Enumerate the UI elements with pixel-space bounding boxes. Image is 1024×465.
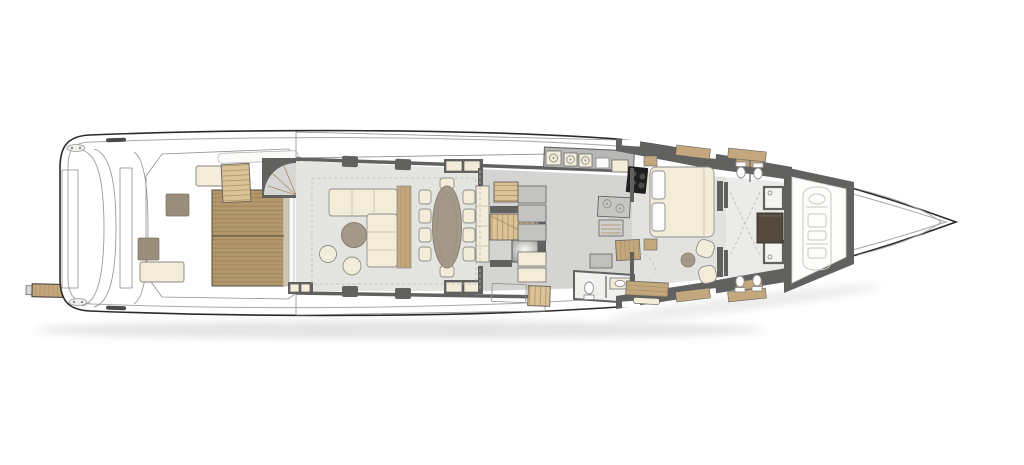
- stairs-upper-flight: [494, 182, 518, 202]
- pouf-1: [320, 246, 337, 263]
- dining-chair: [419, 209, 431, 223]
- toilet: [735, 276, 745, 292]
- exterior-stairs-down: [528, 286, 551, 307]
- pouf-2: [343, 257, 361, 275]
- desk-bench: [633, 297, 659, 304]
- window-mullion: [395, 288, 411, 299]
- pillow: [652, 171, 665, 199]
- deck-plan-canvas: [0, 0, 1024, 465]
- shower-top: [764, 187, 783, 209]
- toilet: [584, 282, 594, 300]
- tv-wall-lower: [717, 247, 723, 277]
- window-mullion: [342, 286, 358, 297]
- cooktop: [626, 166, 649, 194]
- lobby-cabinets: [476, 186, 489, 262]
- bidet: [753, 163, 763, 179]
- island-counter: [597, 196, 630, 218]
- galley-wood-cabinet: [615, 239, 640, 260]
- sideboard-bottom-left: [288, 282, 313, 294]
- nightstand: [644, 156, 657, 166]
- dining-chair: [463, 209, 475, 223]
- sideboard-bottom: [444, 280, 483, 294]
- cleat-bottom: [69, 299, 87, 306]
- bulwark-slot-bottom: [106, 306, 126, 311]
- sun-lounger-2: [140, 262, 184, 282]
- cockpit-threshold-trim: [283, 190, 289, 286]
- nightstand: [644, 239, 657, 250]
- bidet: [752, 275, 762, 291]
- dishwasher: [599, 220, 623, 236]
- yacht-deck-plan: [0, 0, 1024, 465]
- dryer-icon: [579, 154, 592, 167]
- wardrobe-cabinet: [757, 213, 783, 243]
- shower-bottom: [764, 241, 783, 263]
- washer-icon: [564, 153, 577, 166]
- galley-lower-cabinet: [590, 254, 612, 268]
- dining-chair: [463, 228, 475, 242]
- side-table: [681, 253, 695, 267]
- galley-cabinet: [612, 160, 628, 172]
- deck-table-2: [138, 238, 159, 260]
- window-mullion: [342, 156, 358, 168]
- sofa-back-console: [397, 186, 411, 268]
- sideboard-top: [444, 159, 483, 173]
- tv-wall-upper: [717, 181, 723, 211]
- window-slot: [622, 139, 640, 146]
- window-mullion: [395, 159, 411, 171]
- dining-chair: [463, 190, 475, 204]
- laundry-appliance: [546, 151, 561, 165]
- galley-sink: [596, 158, 609, 168]
- toilet: [736, 162, 746, 178]
- cockpit-teak: [212, 190, 284, 286]
- coffee-table: [342, 223, 367, 248]
- tender-garage: [784, 167, 854, 293]
- dining-chair: [419, 247, 431, 261]
- cleat-top: [67, 145, 85, 152]
- master-bed: [650, 167, 714, 237]
- deck-table-1: [166, 194, 189, 216]
- dining-chair: [419, 228, 431, 242]
- dining-chair: [419, 190, 431, 204]
- bulwark-slot-top: [106, 138, 126, 143]
- exterior-stairs-up: [221, 163, 251, 202]
- dining-chair: [463, 247, 475, 261]
- pillow: [652, 203, 665, 231]
